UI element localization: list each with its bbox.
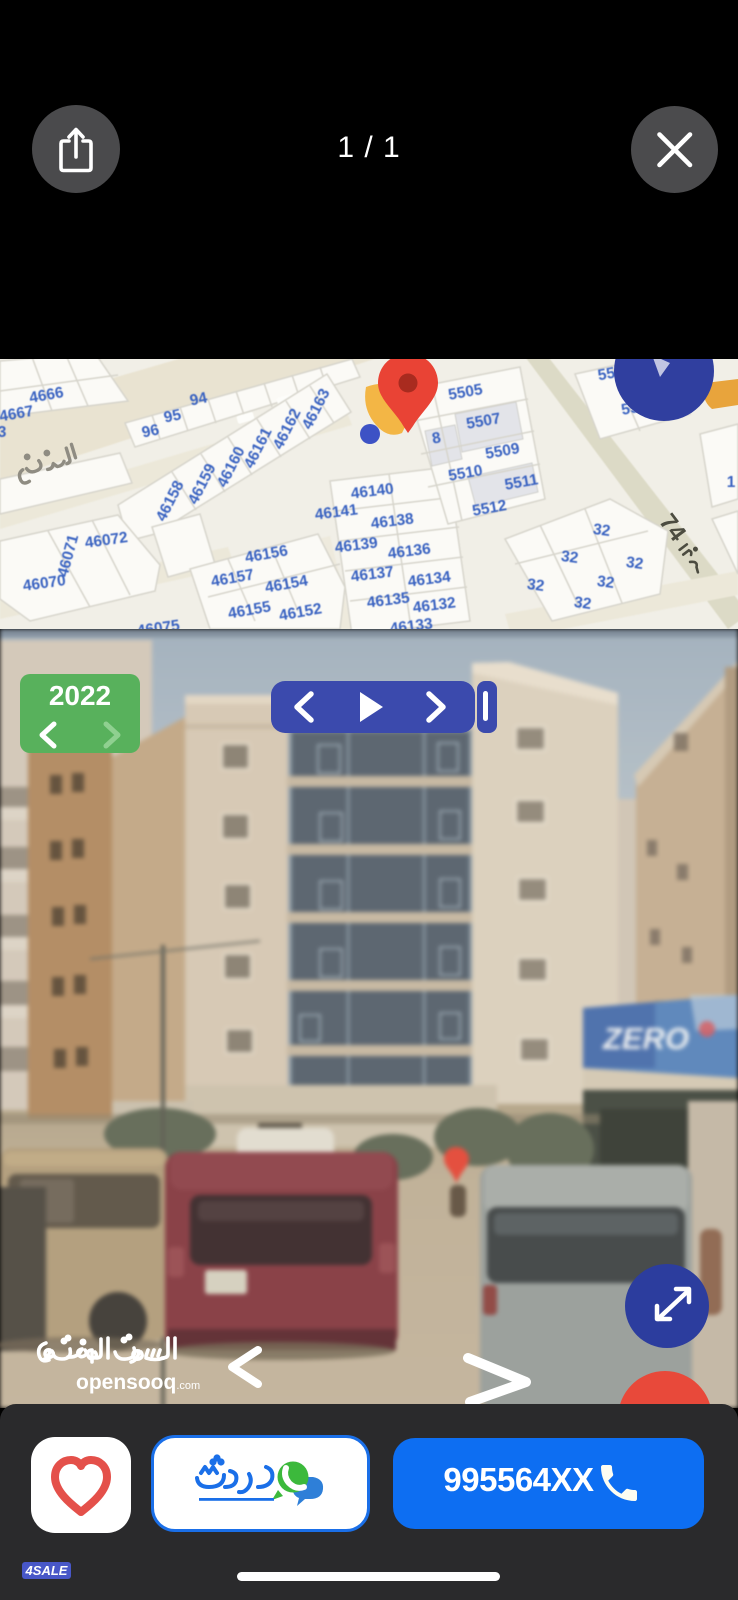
svg-text:55: 55 [596,365,616,385]
svg-text:32: 32 [573,594,592,613]
svg-text:32: 32 [526,576,545,595]
svg-text:3: 3 [0,424,7,441]
svg-text:1: 1 [727,474,736,491]
svg-text:32: 32 [625,554,644,573]
svg-text:32: 32 [596,573,615,592]
svg-text:32: 32 [592,521,611,540]
svg-text:32: 32 [560,548,579,567]
